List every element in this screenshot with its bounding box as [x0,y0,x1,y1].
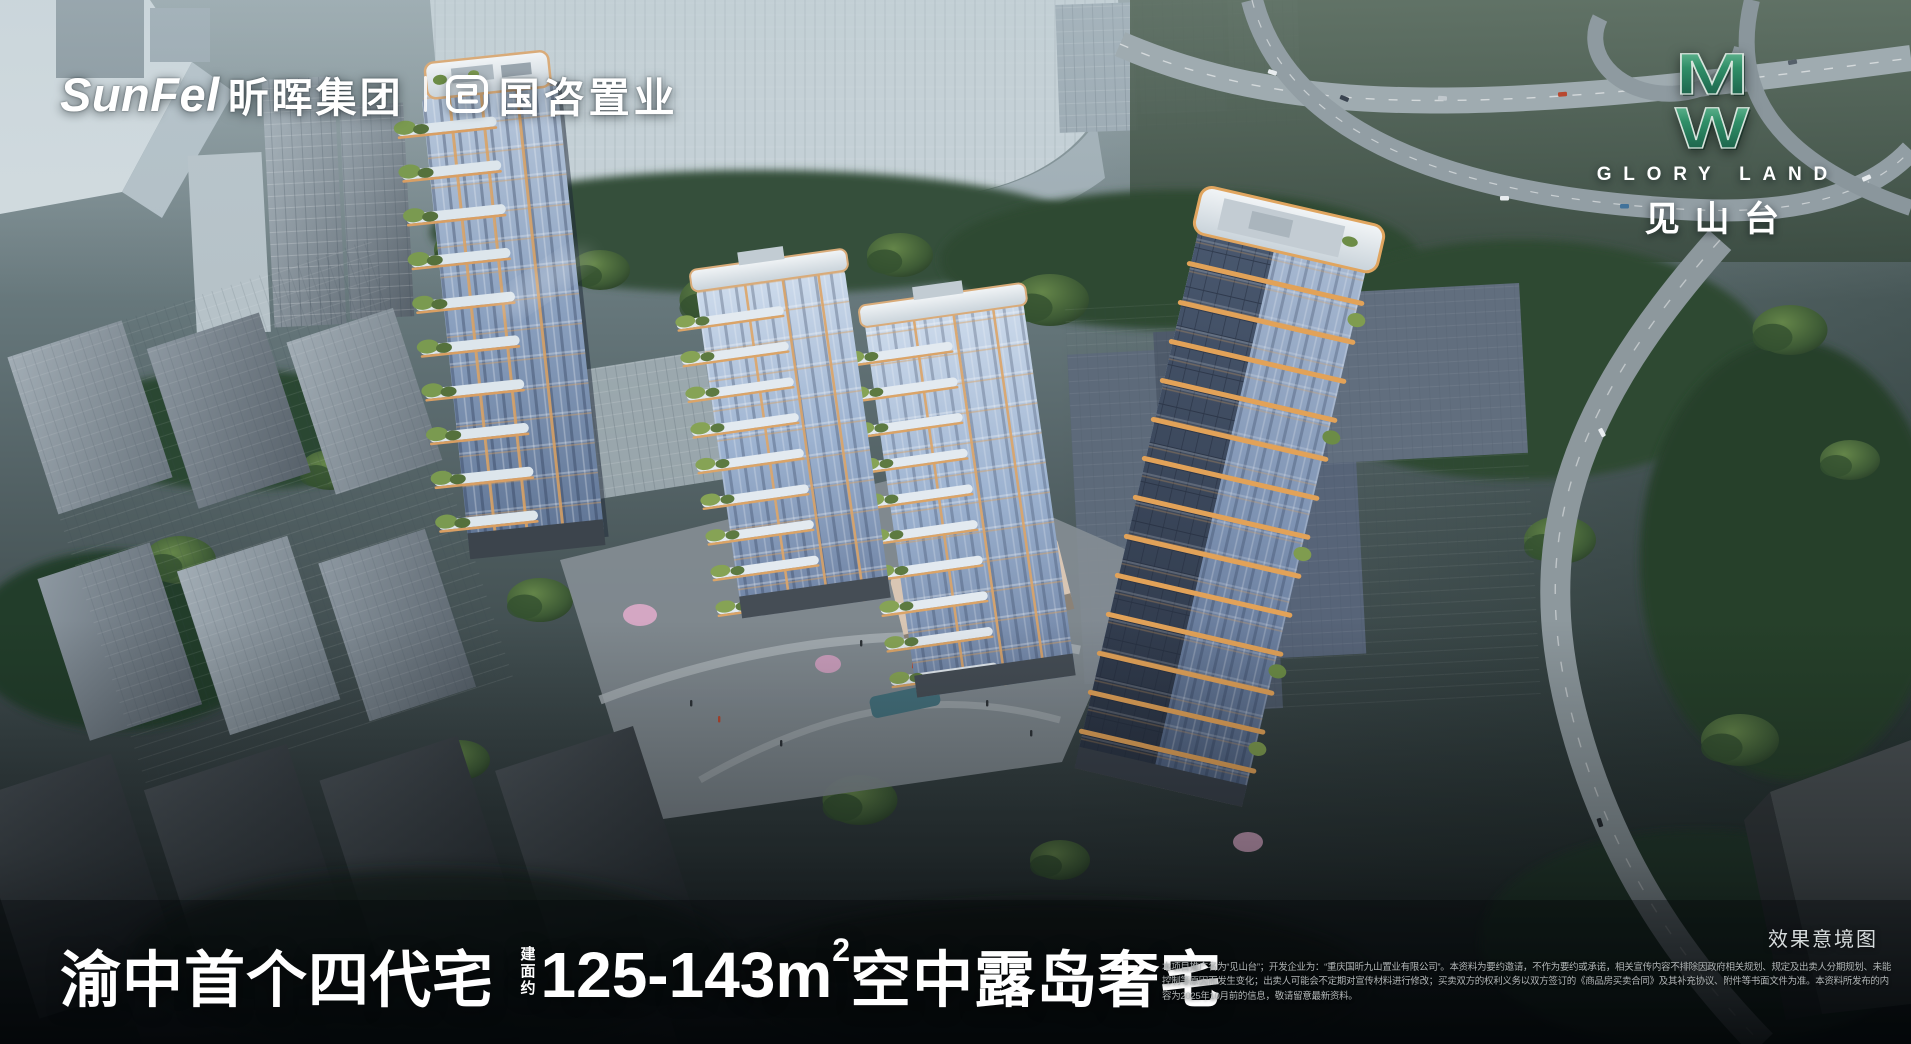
render-caption: 效果意境图 [1162,923,1878,952]
headline: 渝中首个四代宅 建面约 125-143m 2 空中露岛奢宅 [60,930,1222,1019]
partner-logo: 国咨置业 [445,64,679,124]
disclaimer-line: 容为2025年10月前的信息，敬请留意最新资料。 [1162,990,1878,1004]
headline-area-exponent: 2 [832,932,850,969]
partner-logo-cn: 国咨置业 [499,64,679,124]
brand-divider [424,76,427,112]
project-name-cn: 见山台 [1576,191,1848,242]
headline-area-value: 125-143m [541,938,833,1012]
glory-land-monogram-icon: M M W W [1665,48,1759,152]
brand-bar: SunFel 昕晖集团 国咨置业 [60,64,679,124]
sunfel-logo-en: SunFel [60,67,220,122]
project-name-en: GLORY LAND [1576,164,1848,186]
disclaimer-line: 本项目推广名为“见山台”；开发企业为：“重庆国昕九山置业有限公司”。本资料为要约… [1162,961,1878,975]
headline-area-label: 建面约 [518,946,535,1006]
guozi-monogram-icon [445,72,489,116]
project-logo: M M W W GLORY LAND 见山台 [1576,48,1848,242]
sunfel-logo-cn: 昕晖集团 [228,64,404,124]
footnote: 效果意境图 本项目推广名为“见山台”；开发企业为：“重庆国昕九山置业有限公司”。… [1162,923,1878,1004]
headline-prefix: 渝中首个四代宅 [60,930,494,1019]
svg-text:W: W [1675,96,1749,152]
poster: SunFel 昕晖集团 国咨置业 M M W W GLORY LAND 见山台 [0,0,1911,1044]
disclaimer-line: 控制等原因而发生变化；出卖人可能会不定期对宣传材料进行修改；买卖双方的权利义务以… [1162,975,1878,989]
